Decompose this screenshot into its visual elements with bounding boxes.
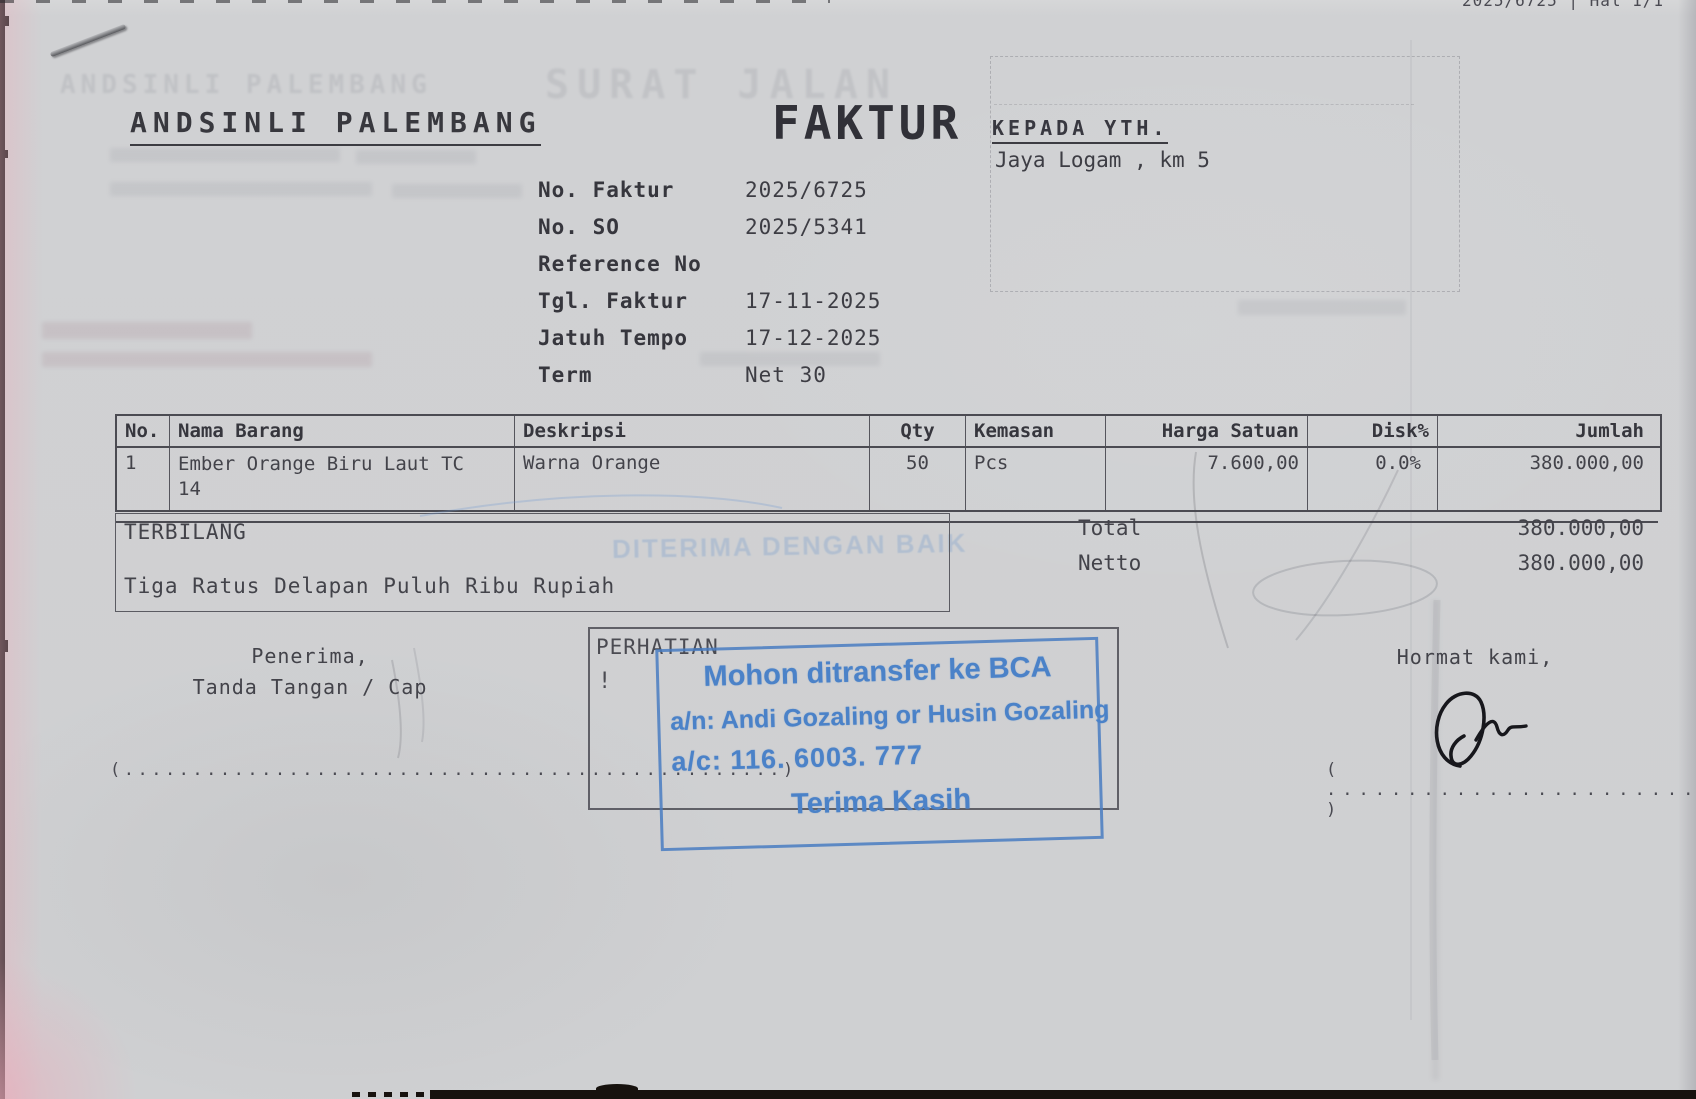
- meta-label: Term: [538, 363, 745, 387]
- col-header-no: No.: [117, 416, 170, 446]
- meta-value: Net 30: [745, 363, 827, 387]
- scan-top-edge: [0, 0, 830, 3]
- col-header-deskripsi: Deskripsi: [515, 416, 870, 446]
- col-header-kemasan: Kemasan: [966, 416, 1106, 446]
- hormat-kami-label: Hormat kami,: [1360, 645, 1590, 669]
- perhatian-mark: !: [598, 669, 611, 694]
- page-number-note: 2025/6725 | Hal 1/1: [1462, 0, 1664, 10]
- meta-label: No. Faktur: [538, 178, 745, 202]
- invoice-meta: No. Faktur 2025/6725 No. SO 2025/5341 Re…: [538, 178, 881, 400]
- meta-row: Jatuh Tempo 17-12-2025: [538, 326, 881, 363]
- ghost-company-text: ANDSINLI PALEMBANG: [60, 70, 432, 100]
- col-header-jumlah: Jumlah: [1438, 416, 1652, 446]
- netto-label: Netto: [1078, 551, 1338, 586]
- meta-value: 17-12-2025: [745, 326, 881, 350]
- penerima-label: Penerima,: [140, 641, 480, 672]
- cell-harga-satuan: 7.600,00: [1106, 448, 1308, 510]
- cell-qty: 50: [870, 448, 966, 510]
- tanda-tangan-label: Tanda Tangan / Cap: [140, 672, 480, 703]
- ghost-box-outline: [990, 56, 1460, 292]
- ghost-blob: [1238, 300, 1406, 315]
- scanned-invoice-page: ANDSINLI PALEMBANG SURAT JALAN DITERIMA …: [0, 0, 1696, 1099]
- scan-right-edge: [1678, 0, 1696, 1099]
- terbilang-text: Tiga Ratus Delapan Puluh Ribu Rupiah: [124, 574, 615, 598]
- total-value: 380.000,00: [1338, 516, 1644, 551]
- meta-row: No. Faktur 2025/6725: [538, 178, 881, 215]
- cell-nama-barang: Ember Orange Biru Laut TC 14: [170, 448, 515, 510]
- meta-row: Tgl. Faktur 17-11-2025: [538, 289, 881, 326]
- ghost-blob: [392, 184, 522, 198]
- paper-smudge: [1432, 600, 1439, 1080]
- netto-row: Netto 380.000,00: [1078, 551, 1644, 586]
- netto-value: 380.000,00: [1338, 551, 1644, 586]
- cell-jumlah: 380.000,00: [1438, 448, 1652, 510]
- meta-value: 2025/6725: [745, 178, 868, 202]
- scan-bottom-bump: [596, 1084, 638, 1093]
- col-header-nama-barang: Nama Barang: [170, 416, 515, 446]
- col-header-qty: Qty: [870, 416, 966, 446]
- staple: [50, 24, 126, 57]
- meta-row: Term Net 30: [538, 363, 881, 400]
- meta-label: Reference No: [538, 252, 745, 276]
- company-name: ANDSINLI PALEMBANG: [130, 106, 541, 146]
- meta-label: Tgl. Faktur: [538, 289, 745, 313]
- ghost-blob: [42, 352, 372, 367]
- items-table-header: No. Nama Barang Deskripsi Qty Kemasan Ha…: [117, 416, 1660, 448]
- items-table: No. Nama Barang Deskripsi Qty Kemasan Ha…: [115, 414, 1662, 512]
- cell-deskripsi: Warna Orange: [515, 448, 870, 510]
- terbilang-label: TERBILANG: [124, 520, 247, 544]
- totals: Total 380.000,00 Netto 380.000,00: [1078, 516, 1644, 586]
- stamp-line-3: a/c: 116. 6003. 777: [671, 740, 923, 778]
- total-label: Total: [1078, 516, 1338, 551]
- penerima-block: Penerima, Tanda Tangan / Cap: [140, 641, 480, 703]
- total-row: Total 380.000,00: [1078, 516, 1644, 551]
- recipient-name: Jaya Logam , km 5: [995, 148, 1210, 172]
- terbilang-box: TERBILANG Tiga Ratus Delapan Puluh Ribu …: [115, 513, 950, 612]
- stamp-line-2: a/n: Andi Gozaling or Husin Gozaling: [670, 696, 1110, 737]
- scan-pink-corner: [0, 959, 140, 1099]
- signature-line-right: ( ........................... ): [1326, 760, 1696, 820]
- ghost-blob: [356, 150, 476, 164]
- document-title: FAKTUR: [772, 96, 962, 150]
- meta-row: No. SO 2025/5341: [538, 215, 881, 252]
- scan-bottom-dashes: [352, 1092, 442, 1097]
- col-header-harga-satuan: Harga Satuan: [1106, 416, 1308, 446]
- bank-transfer-stamp: Mohon ditransfer ke BCA a/n: Andi Gozali…: [655, 637, 1103, 851]
- ghost-blob: [42, 322, 252, 339]
- meta-label: Jatuh Tempo: [538, 326, 745, 350]
- ghost-blob: [110, 182, 372, 196]
- table-row: 1 Ember Orange Biru Laut TC 14 Warna Ora…: [117, 448, 1660, 510]
- ghost-blob: [110, 148, 340, 162]
- meta-row: Reference No: [538, 252, 881, 289]
- meta-label: No. SO: [538, 215, 745, 239]
- cell-disk: 0.0%: [1308, 448, 1438, 510]
- cell-no: 1: [117, 448, 170, 510]
- col-header-disk: Disk%: [1308, 416, 1438, 446]
- recipient-label: KEPADA YTH.: [992, 116, 1168, 144]
- stamp-line-4: Terima Kasih: [662, 780, 1100, 825]
- stamp-line-1: Mohon ditransfer ke BCA: [659, 650, 1097, 695]
- cell-kemasan: Pcs: [966, 448, 1106, 510]
- ghost-box-line: [994, 104, 1414, 105]
- meta-value: 2025/5341: [745, 215, 868, 239]
- meta-value: 17-11-2025: [745, 289, 881, 313]
- scan-pink-tint: [0, 0, 42, 1099]
